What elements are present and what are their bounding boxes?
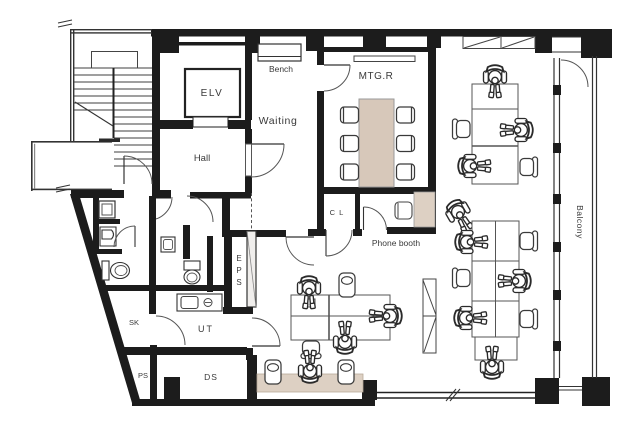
svg-text:PS: PS [138,371,148,380]
svg-text:MTG.R: MTG.R [359,71,394,82]
svg-text:Bench: Bench [269,64,293,74]
svg-text:DS: DS [204,372,218,382]
svg-text:S: S [236,278,241,287]
svg-text:E: E [236,254,241,263]
svg-text:UT: UT [198,324,214,334]
svg-text:Balcony: Balcony [575,205,585,239]
svg-text:P: P [236,266,241,275]
svg-text:Phone booth: Phone booth [372,238,420,248]
svg-text:ELV: ELV [201,88,224,99]
svg-text:Hall: Hall [194,153,210,164]
svg-text:Waiting: Waiting [259,115,298,127]
svg-text:C L: C L [330,208,345,217]
svg-text:SK: SK [129,318,139,327]
